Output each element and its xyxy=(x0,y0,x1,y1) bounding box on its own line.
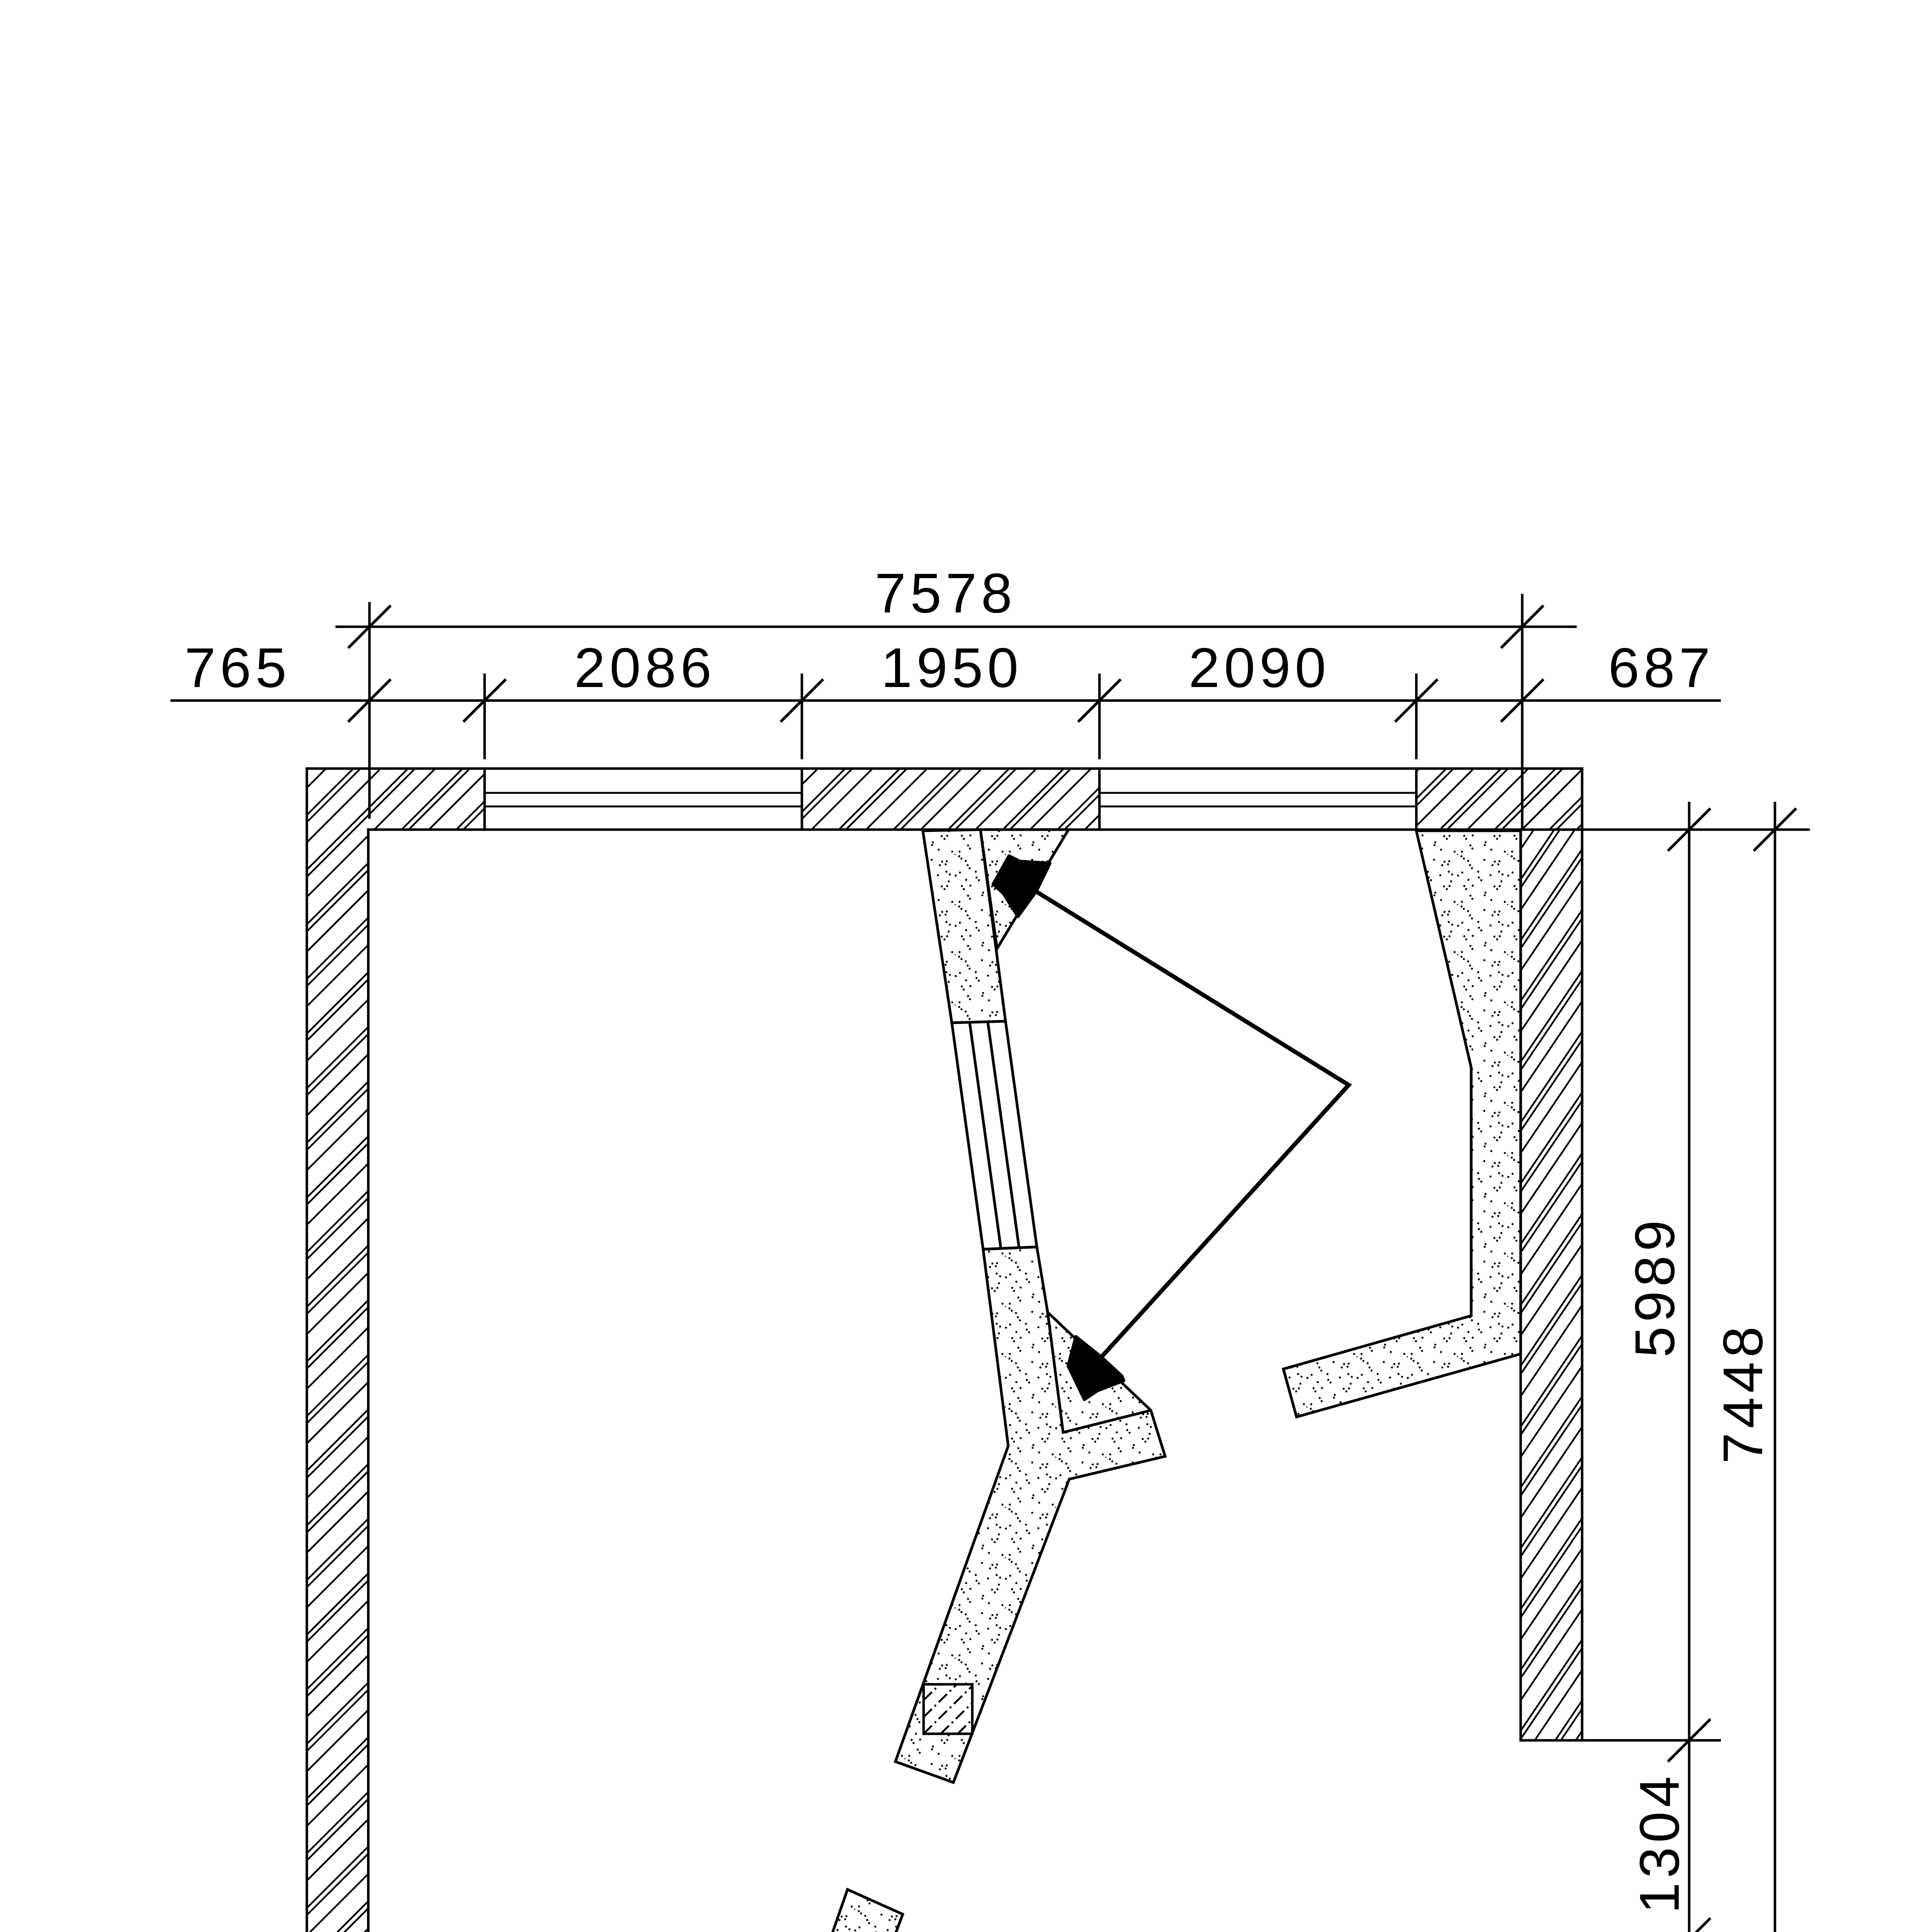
svg-text:687: 687 xyxy=(1608,636,1715,699)
svg-text:2086: 2086 xyxy=(574,636,716,699)
svg-text:1304: 1304 xyxy=(1628,1772,1691,1914)
svg-text:7578: 7578 xyxy=(875,562,1017,624)
svg-text:765: 765 xyxy=(185,636,291,699)
svg-text:7448: 7448 xyxy=(1712,1322,1774,1464)
svg-text:2090: 2090 xyxy=(1189,636,1331,699)
svg-text:1950: 1950 xyxy=(881,636,1023,699)
svg-text:5989: 5989 xyxy=(1623,1216,1686,1358)
